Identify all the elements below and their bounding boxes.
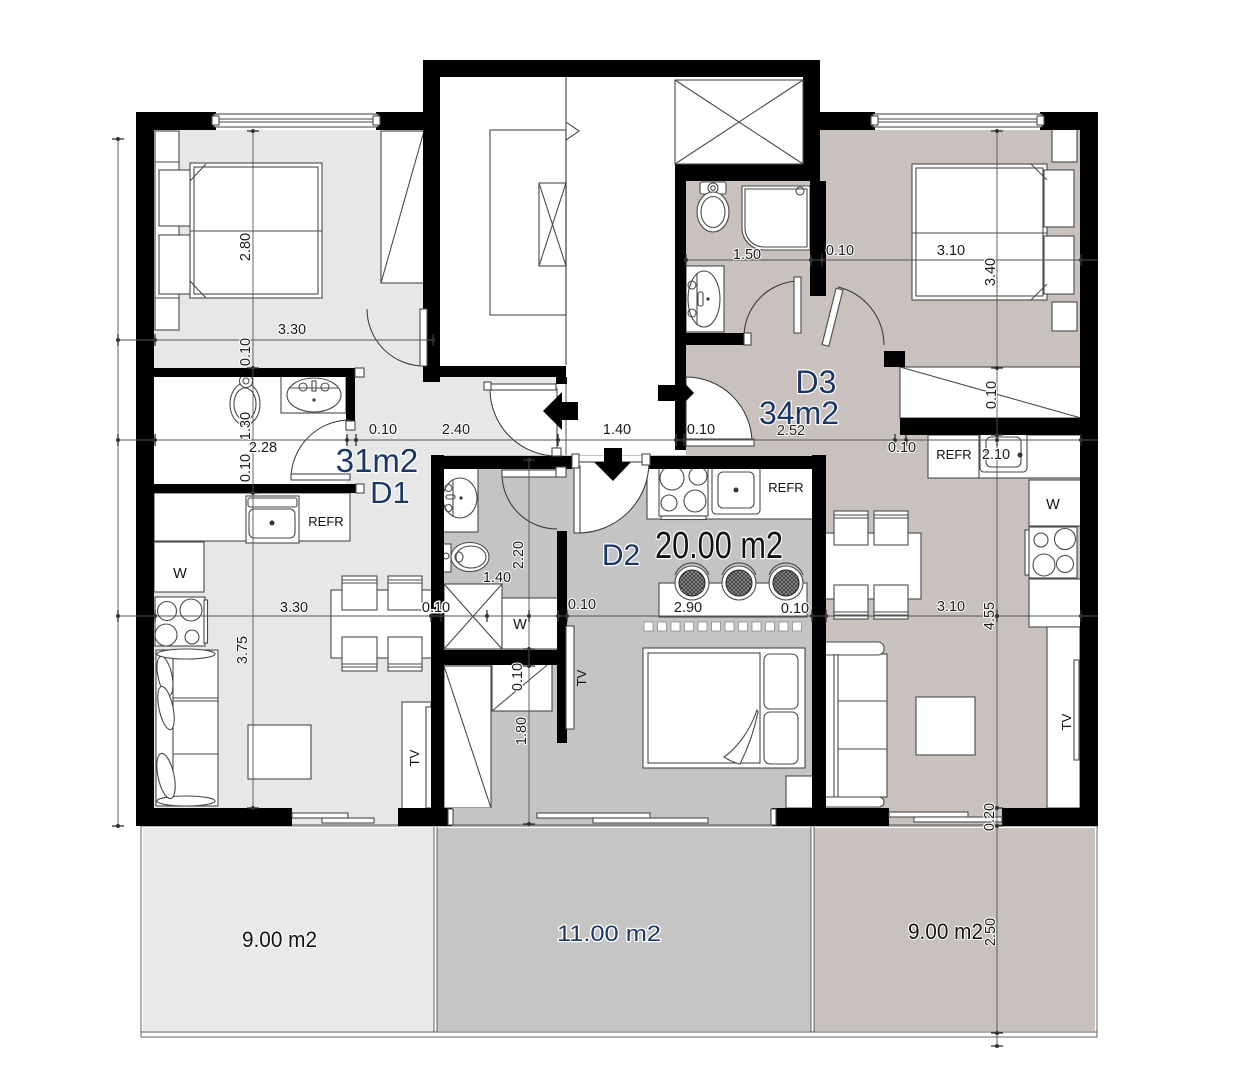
svg-text:REFR: REFR [308,514,343,529]
svg-text:TV: TV [574,669,589,686]
svg-text:TV: TV [407,749,422,766]
svg-text:TV: TV [1059,713,1074,730]
svg-text:2.28: 2.28 [249,440,277,456]
svg-text:2.80: 2.80 [238,233,254,261]
svg-text:34m2: 34m2 [759,395,839,431]
svg-text:3.30: 3.30 [280,600,308,616]
svg-text:1.30: 1.30 [238,412,254,440]
svg-text:REFR: REFR [768,480,803,495]
svg-text:0.10: 0.10 [888,440,916,456]
svg-text:2.10: 2.10 [982,447,1010,463]
svg-text:3.30: 3.30 [278,322,306,338]
svg-text:W: W [513,617,527,633]
svg-text:20.00 m2: 20.00 m2 [655,525,783,567]
svg-text:0.10: 0.10 [826,243,854,259]
svg-text:2.20: 2.20 [511,541,527,569]
svg-text:2.90: 2.90 [674,600,702,616]
svg-text:1.50: 1.50 [733,247,761,263]
svg-text:D2: D2 [602,539,640,572]
svg-text:0.10: 0.10 [510,663,526,691]
svg-text:0.10: 0.10 [687,422,715,438]
svg-text:0.10: 0.10 [238,338,254,366]
svg-text:0.20: 0.20 [982,803,998,831]
svg-text:9.00 m2: 9.00 m2 [242,927,317,952]
svg-text:4.55: 4.55 [982,602,998,630]
svg-text:9.00 m2: 9.00 m2 [908,919,983,944]
svg-text:3.10: 3.10 [937,599,965,615]
svg-text:31m2: 31m2 [336,442,419,479]
svg-text:0.10: 0.10 [238,454,254,482]
svg-text:1.40: 1.40 [483,570,511,586]
svg-text:0.10: 0.10 [422,600,450,616]
svg-text:2.50: 2.50 [983,918,999,946]
svg-text:0.10: 0.10 [781,601,809,617]
svg-text:1.80: 1.80 [514,717,530,745]
svg-text:3.10: 3.10 [937,243,965,259]
svg-text:3.40: 3.40 [983,258,999,286]
svg-text:11.00 m2: 11.00 m2 [557,921,661,946]
svg-text:3.75: 3.75 [235,636,251,664]
svg-text:2.40: 2.40 [442,422,470,438]
svg-text:D1: D1 [370,475,410,510]
svg-text:0.10: 0.10 [369,422,397,438]
svg-text:0.10: 0.10 [568,597,596,613]
svg-text:W: W [173,566,187,582]
svg-text:0.10: 0.10 [984,381,1000,409]
svg-text:1.40: 1.40 [603,422,631,438]
svg-text:W: W [1046,497,1060,513]
svg-text:REFR: REFR [936,447,971,462]
